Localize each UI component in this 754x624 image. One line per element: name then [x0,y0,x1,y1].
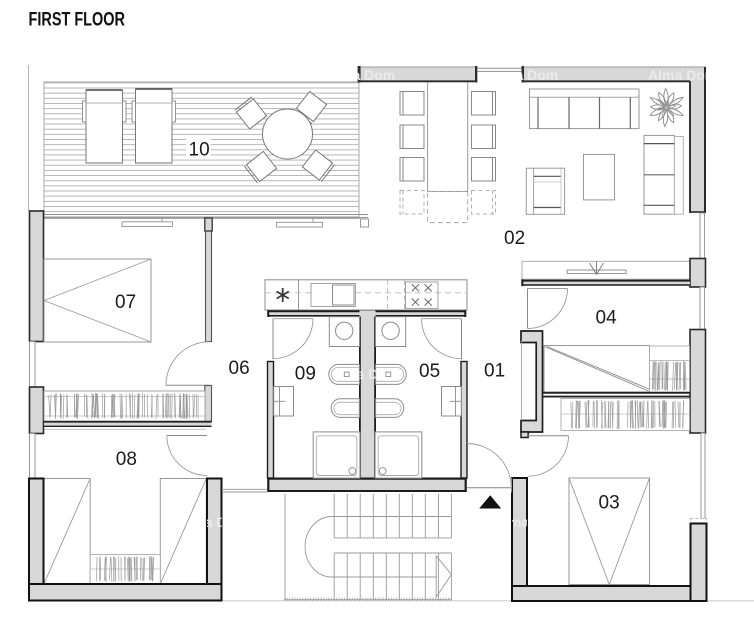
svg-text:04: 04 [596,308,618,329]
svg-text:10: 10 [189,140,210,161]
svg-text:05: 05 [419,361,440,382]
svg-text:08: 08 [116,449,137,470]
svg-text:03: 03 [599,493,620,514]
svg-text:01: 01 [484,361,505,382]
svg-text:02: 02 [504,228,525,249]
svg-text:09: 09 [295,364,316,385]
svg-text:06: 06 [229,358,250,379]
svg-text:FIRST FLOOR: FIRST FLOOR [29,10,126,31]
svg-text:07: 07 [115,292,136,313]
